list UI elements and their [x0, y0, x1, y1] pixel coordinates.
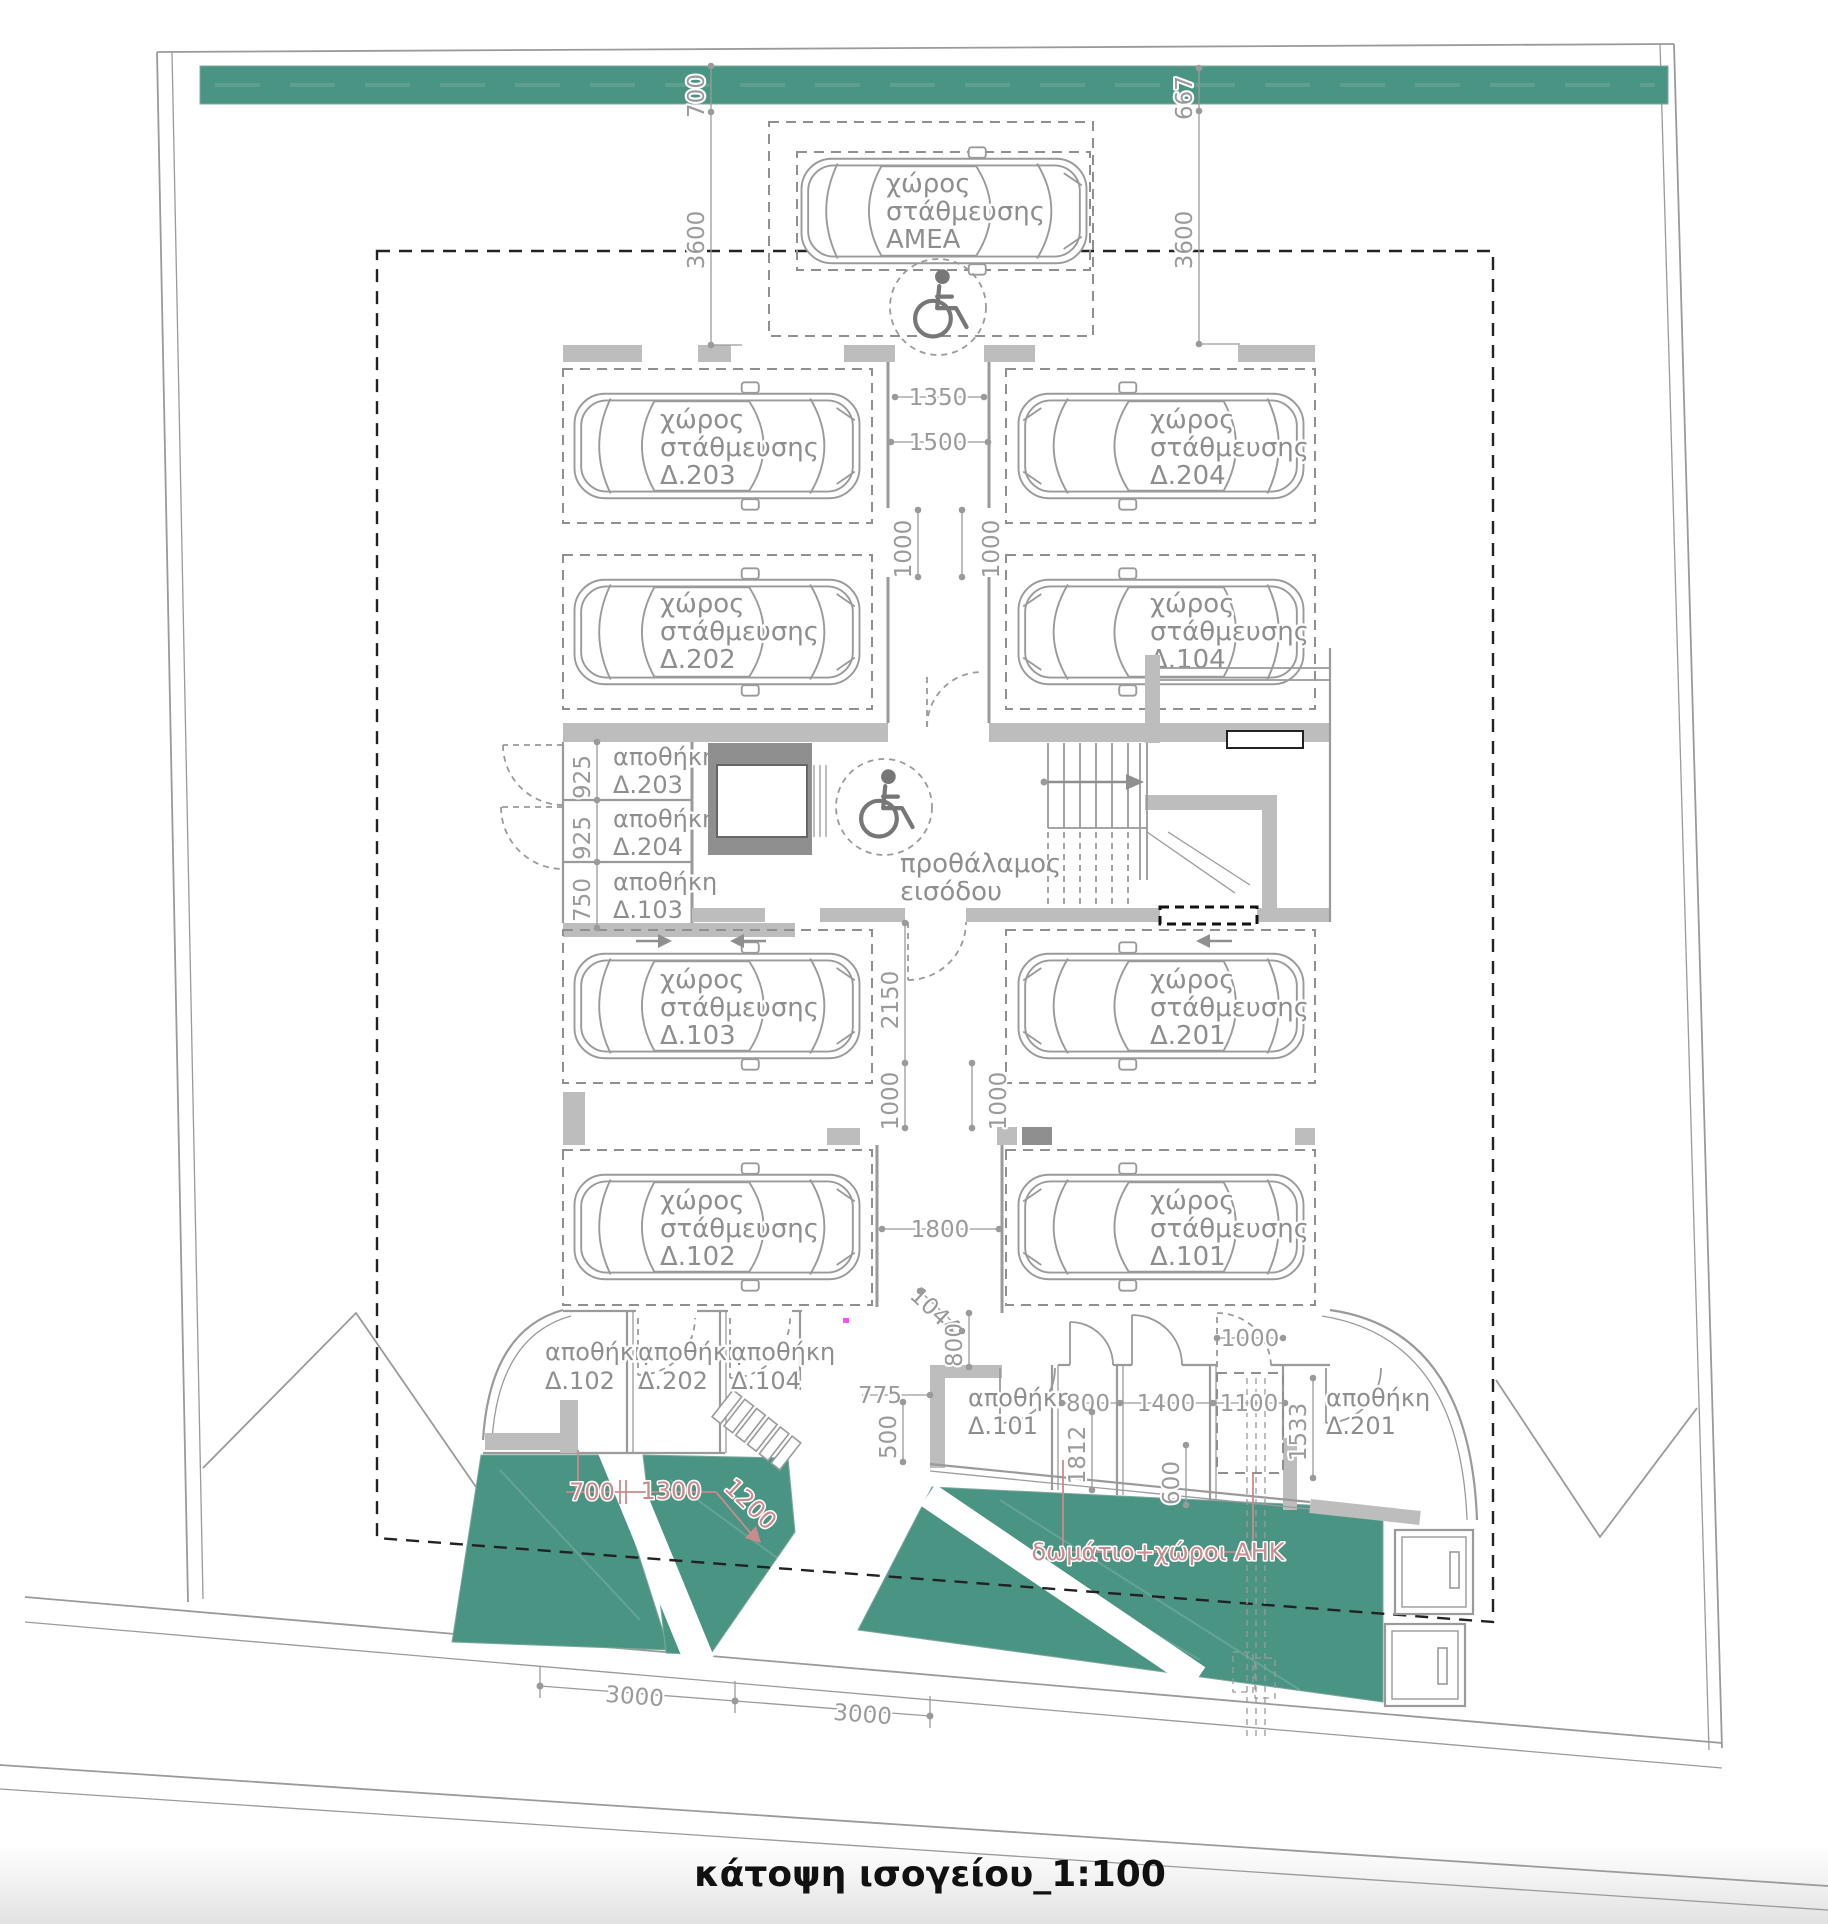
dim-storage-750: 750 [570, 878, 596, 922]
dim-corridor-1500: 1500 [909, 430, 968, 456]
dim-setback-right: 3600 [1172, 211, 1198, 270]
parking-label: χώρος [1150, 965, 1234, 995]
marker-magenta [843, 1318, 849, 1323]
dim-corridor-1350: 1350 [909, 385, 968, 411]
dim-1000c: 1000 [878, 1072, 904, 1131]
storage-left: αποθήκη Δ.203 αποθήκη Δ.204 αποθήκη Δ.10… [501, 743, 717, 924]
dim-1000a: 1000 [891, 520, 917, 579]
parking-label: στάθμευσης [660, 1214, 819, 1244]
parking-label: στάθμευσης [660, 993, 819, 1023]
parking-label: χώρος [660, 1186, 744, 1216]
dim-red-700: 700 [569, 1478, 615, 1506]
dim-1000b: 1000 [979, 520, 1005, 579]
storage-unit-102: Δ.102 [545, 1367, 615, 1395]
wheelchair-icon [915, 269, 966, 336]
parking-label: χώρος [660, 589, 744, 619]
equipment-boxes [1385, 1530, 1473, 1706]
parking-label: στάθμευσης [660, 433, 819, 463]
vestibule: προθάλαμος εισόδου [836, 672, 1061, 980]
parking-amea-label-2: στάθμευσης [886, 197, 1045, 227]
staircase [1041, 743, 1251, 905]
storage-label: αποθήκη [613, 868, 717, 896]
dim-2150: 2150 [878, 971, 904, 1030]
parking-label: χώρος [1150, 405, 1234, 435]
parking-unit-201: Δ.201 [1150, 1021, 1226, 1051]
dim-red-1300: 1300 [640, 1477, 701, 1505]
parking-unit-101: Δ.101 [1150, 1242, 1226, 1272]
dim-3000a: 3000 [604, 1682, 664, 1713]
dim-800b: 800 [1066, 1391, 1110, 1417]
storage-label: αποθήκη [613, 805, 717, 833]
floor-plan-drawing: χώρος στάθμευσης ΑΜΕΑ χώρος στάθμευσης Δ… [0, 0, 1828, 1924]
wheelchair-icon [861, 769, 912, 836]
neighbour-boundary-right [1496, 1380, 1697, 1537]
dim-1800: 1800 [911, 1217, 970, 1243]
parking-unit-204: Δ.204 [1150, 461, 1226, 491]
storage-label: αποθήκη [1326, 1384, 1430, 1412]
storage-label: αποθήκη [613, 743, 717, 771]
ahk-room-dashed [1217, 1373, 1283, 1473]
dim-verge-left: 700 [684, 74, 710, 118]
storage-bottom-left: αποθήκη Δ.102 αποθήκη Δ.202 αποθήκη Δ.10… [483, 1310, 849, 1470]
storage-unit-203: Δ.203 [613, 771, 683, 799]
dim-1812: 1812 [1065, 1426, 1091, 1485]
vestibule-label-2: εισόδου [900, 877, 1002, 907]
parking-unit-103: Δ.103 [660, 1021, 736, 1051]
parking-label: χώρος [1150, 1186, 1234, 1216]
storage-unit-204: Δ.204 [613, 833, 683, 861]
dim-storage-925a: 925 [570, 755, 596, 799]
storage-unit-103: Δ.103 [613, 896, 683, 924]
parking-unit-203: Δ.203 [660, 461, 736, 491]
parking-row-3: χώρος στάθμευσης Δ.103 χώρος στάθμευσης … [563, 930, 1315, 1083]
dim-775: 775 [858, 1383, 902, 1409]
ahk-room-label: δωμάτιο+χώροι ΑΗΚ [1031, 1538, 1285, 1566]
dim-1533: 1533 [1286, 1403, 1312, 1462]
storage-unit-101: Δ.101 [968, 1412, 1038, 1440]
floor-plan-page: χώρος στάθμευσης ΑΜΕΑ χώρος στάθμευσης Δ… [0, 0, 1828, 1924]
dim-1000d: 1000 [986, 1072, 1012, 1131]
parking-amea-label-1: χώρος [886, 169, 970, 199]
threshold-dashed-box [1160, 907, 1257, 924]
dim-500: 500 [876, 1415, 902, 1459]
storage-unit-104: Δ.104 [731, 1367, 801, 1395]
dim-600: 600 [1159, 1461, 1185, 1505]
parking-label: χώρος [660, 405, 744, 435]
parking-label: στάθμευσης [1150, 993, 1309, 1023]
parking-unit-202: Δ.202 [660, 645, 736, 675]
storage-label: αποθήκη [638, 1338, 742, 1366]
elevator [708, 743, 826, 855]
dim-storage-925b: 925 [570, 816, 596, 860]
green-verge-top [200, 66, 1668, 104]
elevator-cab [717, 765, 807, 837]
storage-label: αποθήκη [968, 1384, 1072, 1412]
parking-amea: χώρος στάθμευσης ΑΜΕΑ [769, 122, 1093, 355]
dim-3000b: 3000 [832, 1700, 892, 1731]
parking-label: χώρος [660, 965, 744, 995]
parking-label: στάθμευσης [1150, 1214, 1309, 1244]
dim-verge-right: 667 [1172, 76, 1198, 120]
stair-direction-arrow [1126, 774, 1144, 790]
storage-unit-201: Δ.201 [1326, 1412, 1396, 1440]
parking-label: χώρος [1150, 589, 1234, 619]
parking-unit-102: Δ.102 [660, 1242, 736, 1272]
vestibule-label-1: προθάλαμος [900, 849, 1061, 879]
parking-unit-104: Δ.104 [1150, 645, 1226, 675]
sill-box [1227, 731, 1303, 748]
parking-row-2: χώρος στάθμευσης Δ.202 χώρος στάθμευσης … [563, 555, 1315, 709]
dim-1100: 1100 [1220, 1391, 1279, 1417]
parking-label: στάθμευσης [1150, 433, 1309, 463]
parking-label: στάθμευσης [660, 617, 819, 647]
storage-label: αποθήκη [545, 1338, 649, 1366]
storage-unit-202: Δ.202 [638, 1367, 708, 1395]
drawing-title: κάτοψη ισογείου_1:100 [694, 1854, 1166, 1895]
dim-setback-left: 3600 [684, 211, 710, 270]
parking-label: στάθμευσης [1150, 617, 1309, 647]
parking-amea-label-3: ΑΜΕΑ [886, 225, 961, 255]
dim-1000e: 1000 [1221, 1326, 1280, 1352]
wall-stubs-top [563, 345, 1315, 362]
neighbour-boundary-left [203, 1313, 476, 1487]
drive-arrow-left [1196, 934, 1210, 948]
dim-1400: 1400 [1137, 1391, 1196, 1417]
storage-label: αποθήκη [731, 1338, 835, 1366]
